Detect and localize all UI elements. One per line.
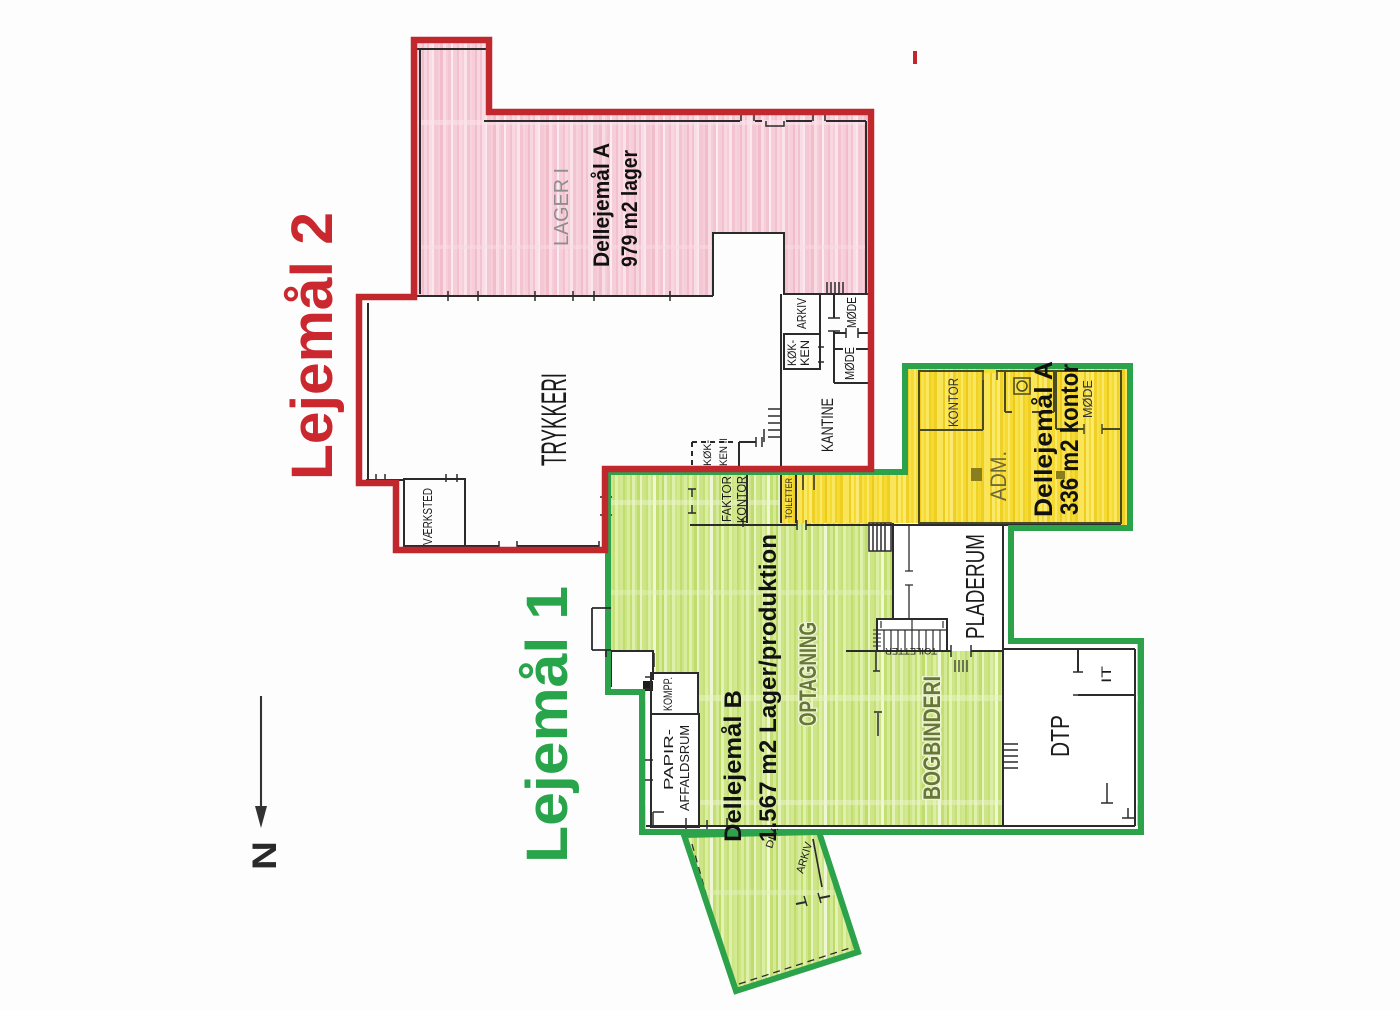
svg-text:AFFALDSRUM: AFFALDSRUM: [678, 725, 692, 811]
svg-text:LAGER I: LAGER I: [551, 168, 573, 246]
svg-text:TOILETTER: TOILETTER: [885, 645, 937, 656]
svg-text:Dellejemål A: Dellejemål A: [589, 143, 614, 267]
svg-text:ADM.: ADM.: [986, 451, 1011, 501]
svg-text:Dellejemål A: Dellejemål A: [1030, 361, 1058, 517]
svg-text:979 m2 lager: 979 m2 lager: [617, 150, 642, 267]
svg-text:ARKIV: ARKIV: [794, 298, 809, 329]
svg-text:IT: IT: [1098, 665, 1114, 683]
svg-text:KOMPP.: KOMPP.: [661, 677, 675, 711]
svg-text:Lejemål 2: Lejemål 2: [280, 212, 345, 480]
svg-text:Lejemål 1: Lejemål 1: [515, 586, 580, 863]
svg-text:336 m2 kontor: 336 m2 kontor: [1056, 364, 1084, 515]
svg-text:VÆRKSTED: VÆRKSTED: [420, 488, 435, 545]
svg-text:MØDE: MØDE: [842, 347, 857, 380]
svg-text:1.567 m2 Lager/produktion: 1.567 m2 Lager/produktion: [755, 534, 782, 842]
svg-text:N: N: [245, 841, 283, 870]
svg-text:KEN II: KEN II: [718, 438, 730, 466]
svg-text:KØK-: KØK-: [702, 440, 714, 466]
svg-text:MØDE: MØDE: [844, 297, 859, 328]
svg-text:PLADERUM: PLADERUM: [960, 534, 990, 639]
svg-text:TOILETTER: TOILETTER: [784, 478, 795, 519]
svg-text:TRYKKERI: TRYKKERI: [535, 373, 574, 466]
svg-text:KEN: KEN: [798, 340, 812, 366]
svg-text:DTP: DTP: [1045, 715, 1075, 757]
svg-text:OPTAGNING: OPTAGNING: [795, 622, 822, 726]
svg-text:KANTINE: KANTINE: [818, 398, 837, 452]
svg-text:PAPIR-: PAPIR-: [662, 729, 676, 790]
svg-text:KONTOR: KONTOR: [735, 476, 749, 523]
svg-text:Dellejemål B: Dellejemål B: [720, 690, 747, 842]
svg-text:KONTOR: KONTOR: [945, 378, 961, 427]
svg-text:KØK-: KØK-: [785, 340, 799, 366]
svg-text:BOGBINDERI: BOGBINDERI: [919, 676, 946, 800]
svg-text:FAKTOR: FAKTOR: [720, 476, 734, 522]
